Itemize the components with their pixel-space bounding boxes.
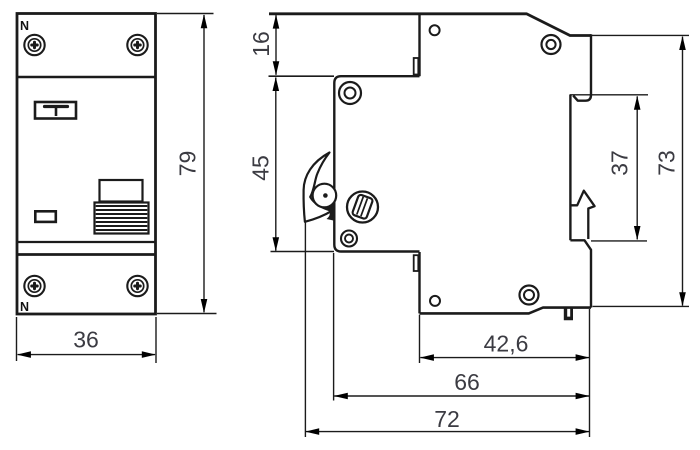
svg-text:37: 37: [607, 150, 633, 176]
svg-text:45: 45: [248, 155, 274, 181]
svg-text:N: N: [20, 19, 29, 33]
svg-text:79: 79: [174, 151, 200, 177]
svg-text:42,6: 42,6: [484, 330, 529, 356]
svg-text:73: 73: [654, 150, 680, 176]
svg-text:N: N: [20, 300, 29, 314]
svg-text:72: 72: [434, 406, 460, 432]
svg-text:16: 16: [248, 31, 274, 57]
svg-text:36: 36: [73, 326, 99, 352]
svg-text:66: 66: [454, 369, 480, 395]
